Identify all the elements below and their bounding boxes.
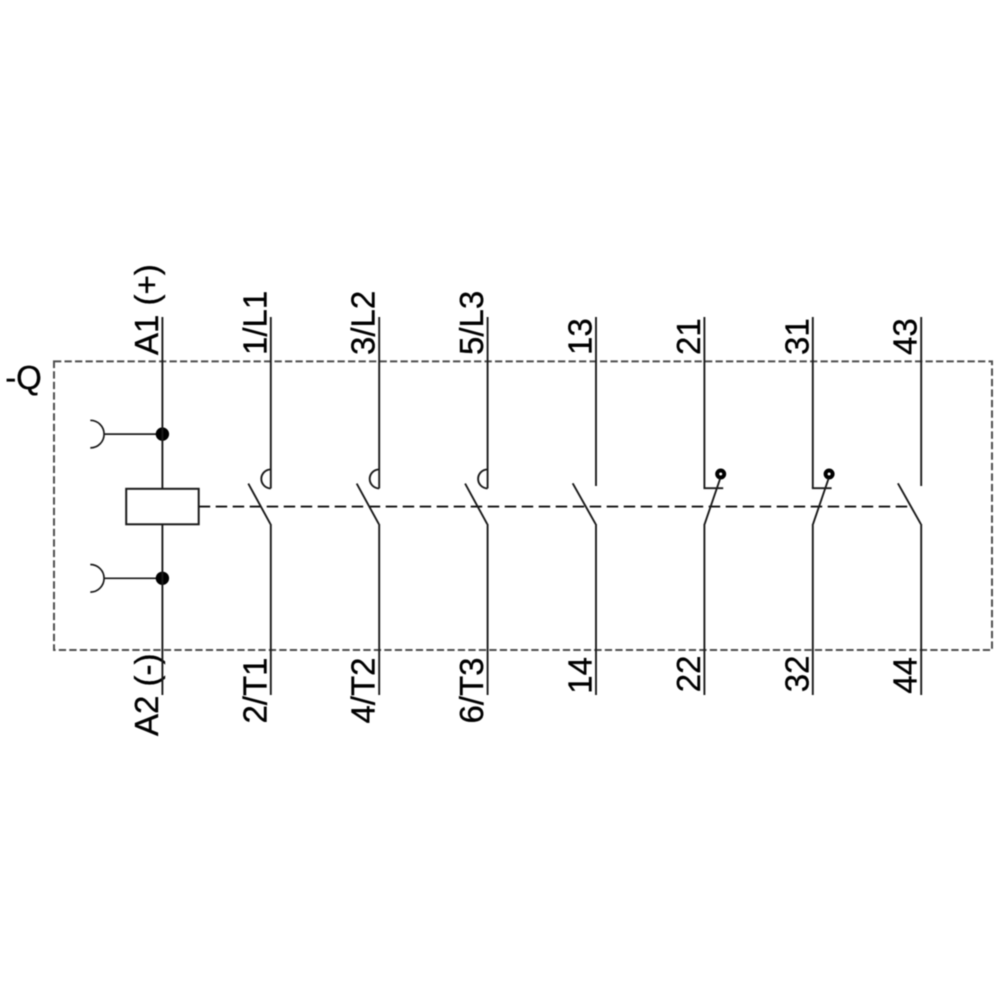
svg-text:43: 43 <box>887 318 924 355</box>
svg-text:5/L3: 5/L3 <box>453 291 490 355</box>
svg-text:A2 (-): A2 (-) <box>128 654 165 737</box>
svg-text:21: 21 <box>670 318 707 355</box>
svg-text:6/T3: 6/T3 <box>453 658 490 724</box>
svg-text:-Q: -Q <box>5 359 42 396</box>
svg-text:22: 22 <box>670 656 707 693</box>
svg-text:32: 32 <box>778 656 815 693</box>
svg-text:1/L1: 1/L1 <box>236 291 273 355</box>
svg-text:2/T1: 2/T1 <box>236 658 273 724</box>
svg-text:A1 (+): A1 (+) <box>128 264 165 355</box>
svg-text:31: 31 <box>778 318 815 355</box>
svg-text:4/T2: 4/T2 <box>345 658 382 724</box>
svg-text:13: 13 <box>562 318 599 355</box>
svg-text:14: 14 <box>562 657 599 694</box>
svg-text:44: 44 <box>887 657 924 694</box>
svg-text:3/L2: 3/L2 <box>345 291 382 355</box>
